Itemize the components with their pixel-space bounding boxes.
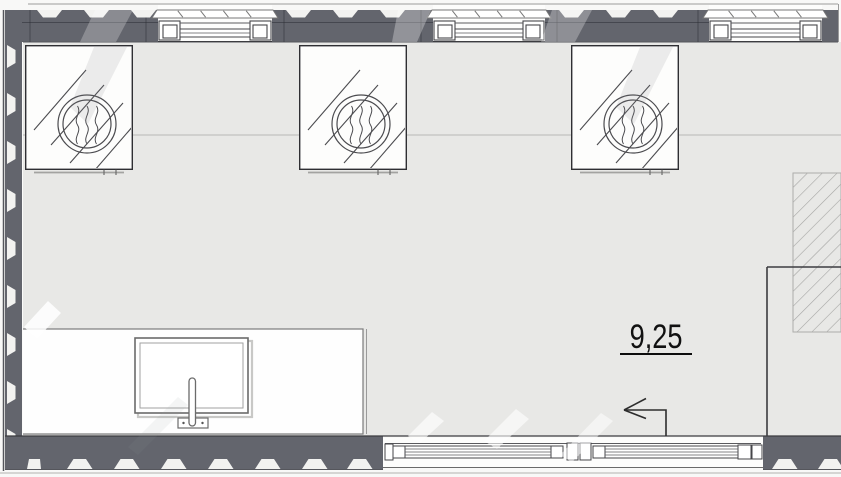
room-area-label: 9,25 [620, 322, 692, 355]
left-wall-notches [7, 45, 16, 452]
room-area-value: 9,25 [630, 322, 683, 352]
shaft-hatch-area [793, 173, 841, 332]
window-top-1 [152, 5, 278, 42]
floor-plan-canvas: 9,25 [0, 0, 841, 477]
top-windows [152, 5, 828, 42]
left-wall [4, 10, 23, 471]
window-top-2 [427, 5, 551, 42]
floor-plan-drawing [0, 0, 841, 477]
fan-coil-unit-2 [300, 46, 414, 178]
window-top-3 [703, 5, 828, 42]
